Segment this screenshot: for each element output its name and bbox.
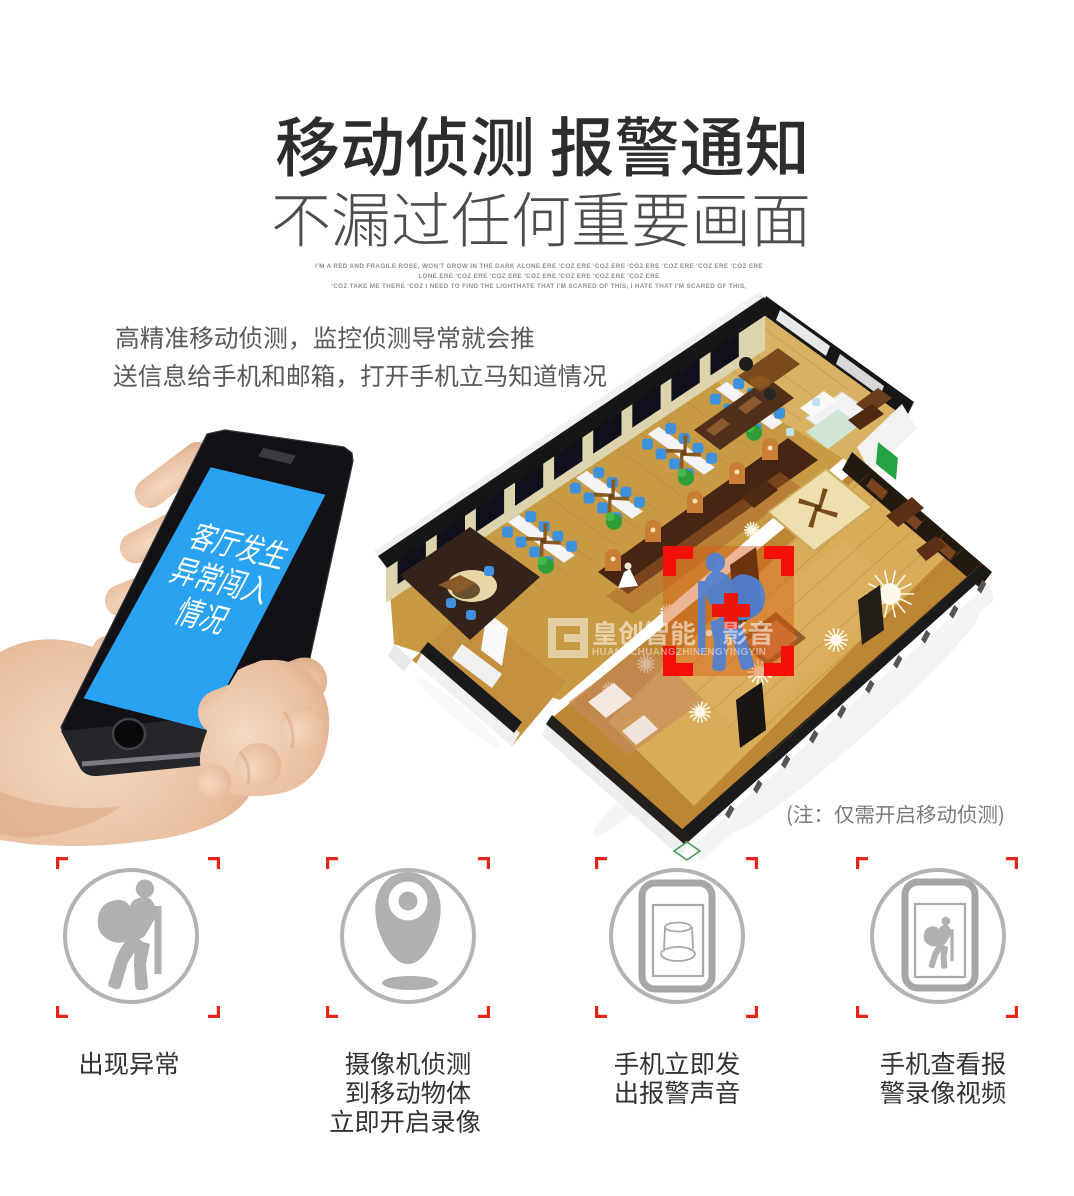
svg-text:I'M A RED AND FRAGILE ROSE, WO: I'M A RED AND FRAGILE ROSE, WON'T GROW I… <box>315 263 763 270</box>
svg-text:LONE ERE 'COZ ERE 'COZ ERE 'CO: LONE ERE 'COZ ERE 'COZ ERE 'COZ ERE 'COZ… <box>418 273 659 280</box>
svg-text:HUANGCHUANGZHINENGYINGYIN: HUANGCHUANGZHINENGYINGYIN <box>592 647 766 658</box>
svg-text:'COZ TAKE ME THERE 'COZ I NEED: 'COZ TAKE ME THERE 'COZ I NEED TO FIND T… <box>331 283 746 290</box>
